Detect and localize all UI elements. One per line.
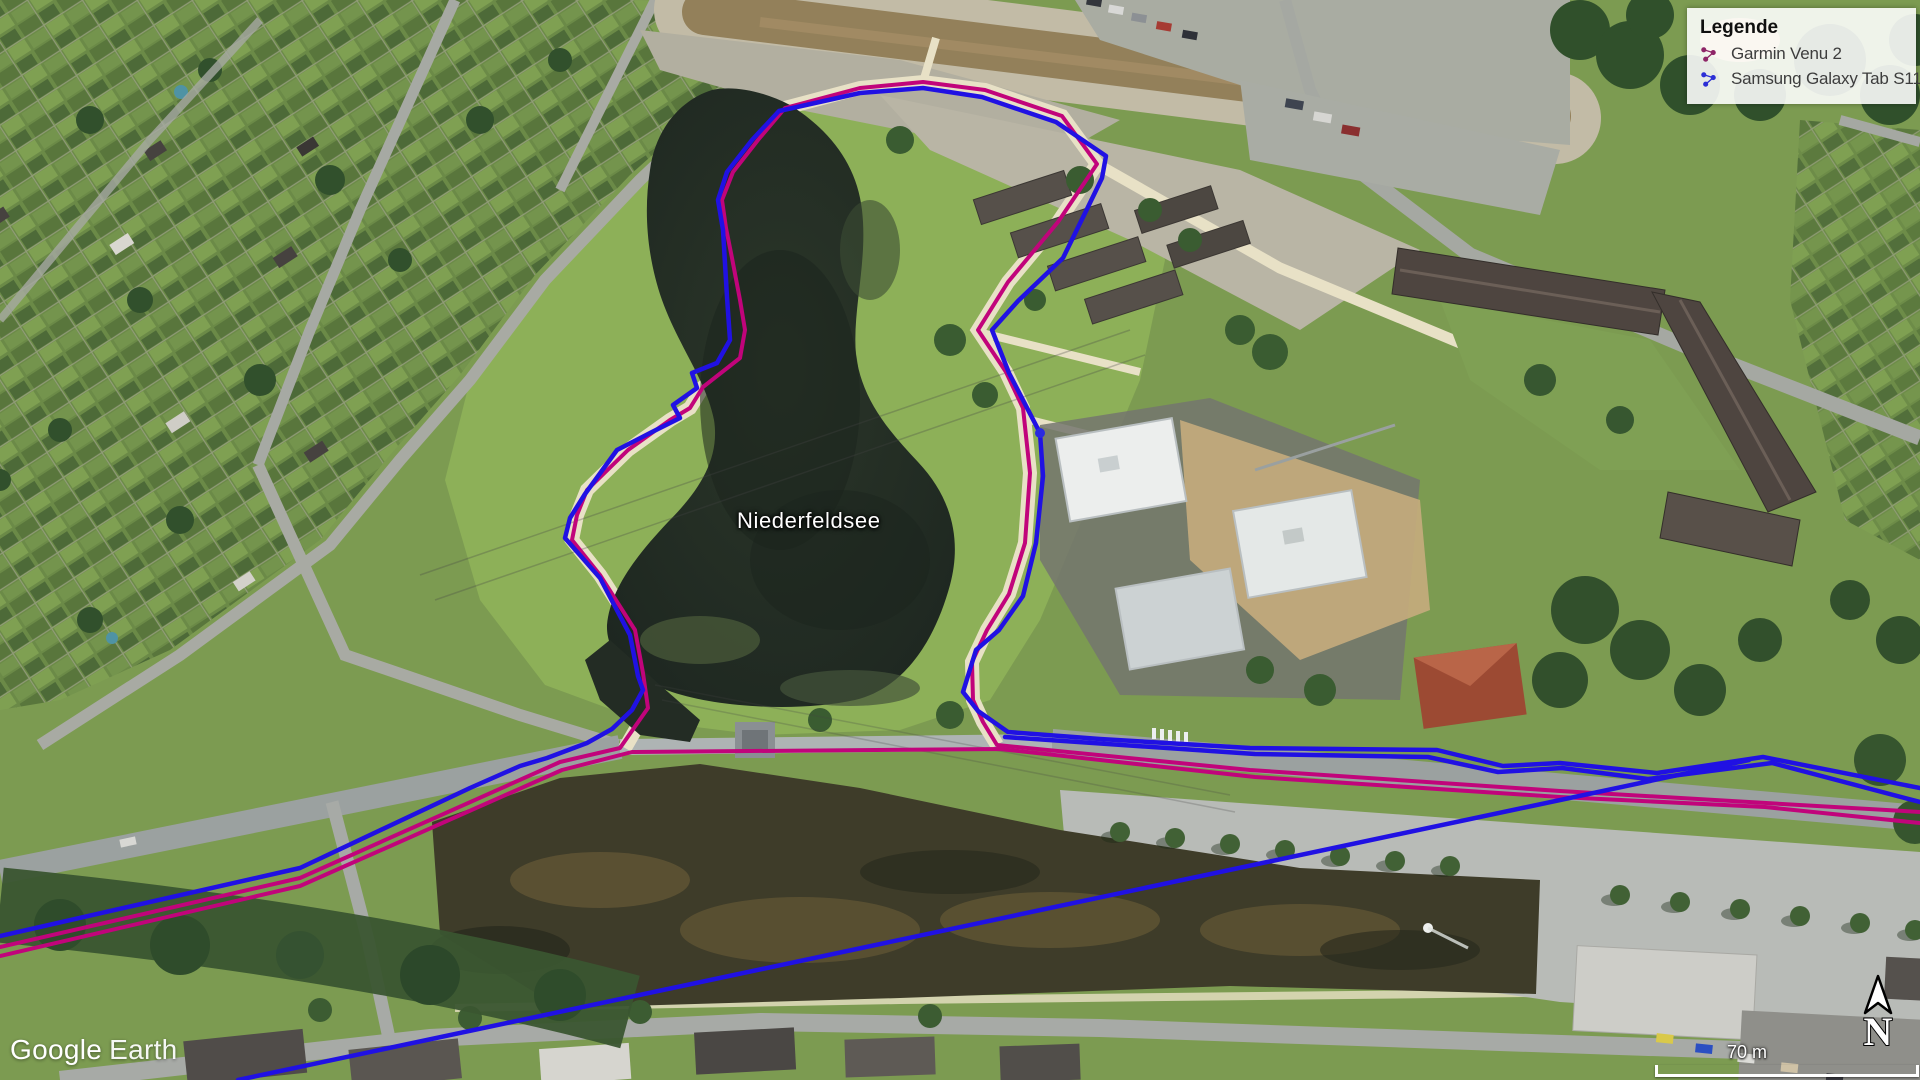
scale-bar-line xyxy=(1655,1065,1919,1077)
legend-item-garmin: Garmin Venu 2 xyxy=(1700,44,1916,64)
legend-item-label: Samsung Galaxy Tab S11 xyxy=(1731,69,1920,89)
scale-label: 70 m xyxy=(1727,1042,1767,1063)
legend-title: Legende xyxy=(1700,17,1916,39)
legend-item-label: Garmin Venu 2 xyxy=(1731,44,1842,64)
red-roof-house xyxy=(1414,643,1527,729)
logo-earth-text: Earth xyxy=(109,1034,177,1065)
north-label: N xyxy=(1864,1009,1893,1052)
samsung-track-icon xyxy=(1700,71,1717,88)
north-arrow[interactable]: N xyxy=(1852,972,1904,1052)
north-arrow-icon xyxy=(1865,976,1891,1013)
track-point-marker[interactable] xyxy=(1035,428,1045,438)
logo-google-text: Google xyxy=(10,1034,102,1065)
google-earth-logo: GoogleEarth xyxy=(10,1034,178,1066)
legend-panel: Legende Garmin Venu 2 Samsung Gal xyxy=(1687,8,1916,104)
place-label-niederfeldsee[interactable]: Niederfeldsee xyxy=(737,508,881,534)
satellite-map[interactable] xyxy=(0,0,1920,1080)
legend-item-samsung: Samsung Galaxy Tab S11 xyxy=(1700,69,1916,89)
garmin-track-icon xyxy=(1700,46,1717,63)
